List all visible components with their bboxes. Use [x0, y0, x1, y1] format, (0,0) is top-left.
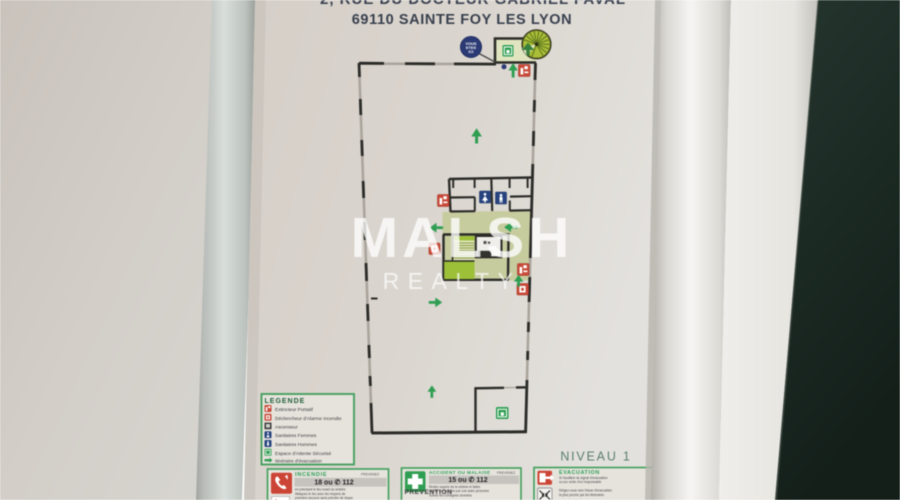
- svg-text:Ascenseur: Ascenseur: [275, 424, 298, 430]
- svg-text:premiers secours sans prendre: premiers secours sans prendre de risque: [295, 496, 353, 500]
- svg-text:15 ou ✆ 112: 15 ou ✆ 112: [448, 476, 487, 484]
- svg-text:PREVENEZ: PREVENEZ: [361, 473, 379, 477]
- svg-text:ou sur ordre d'un responsable: ou sur ordre d'un responsable: [559, 480, 601, 484]
- svg-text:PREVENEZ: PREVENEZ: [497, 471, 515, 475]
- svg-text:Itinéraire d'évacuation: Itinéraire d'évacuation: [275, 458, 322, 464]
- svg-text:en précisant le lieu exact du: en précisant le lieu exact du sinistre: [295, 488, 346, 492]
- svg-text:MALSH: MALSH: [351, 206, 574, 270]
- svg-text:LEGENDE: LEGENDE: [265, 398, 306, 405]
- svg-text:EVACUATION: EVACUATION: [559, 470, 600, 476]
- svg-text:18 ou ✆ 112: 18 ou ✆ 112: [314, 479, 353, 487]
- svg-text:69110 SAINTE FOY LES LYON: 69110 SAINTE FOY LES LYON: [352, 12, 573, 28]
- svg-text:la plus proche par les itinéra: la plus proche par les itinéraires: [559, 493, 604, 497]
- svg-text:Déclencheur d'Alarme Incendie: Déclencheur d'Alarme Incendie: [275, 416, 342, 422]
- svg-text:Suivez les consignes données: Suivez les consignes données: [429, 493, 472, 497]
- svg-text:NIVEAU 1: NIVEAU 1: [560, 450, 631, 464]
- svg-text:2, RUE DU DOCTEUR GABRIEL FAVA: 2, RUE DU DOCTEUR GABRIEL FAVAL: [320, 0, 626, 8]
- svg-text:Espace d'Attente Sécurisé: Espace d'Attente Sécurisé: [275, 451, 331, 457]
- svg-text:Sanitaires Hommes: Sanitaires Hommes: [275, 442, 317, 448]
- svg-text:REALTY: REALTY: [383, 268, 522, 294]
- svg-text:Sanitaires Femmes: Sanitaires Femmes: [275, 433, 317, 439]
- svg-text:ACCIDENT OU MALAISE: ACCIDENT OU MALAISE: [429, 470, 490, 475]
- svg-text:ICI: ICI: [469, 49, 474, 54]
- svg-text:INCENDIE: INCENDIE: [295, 472, 327, 478]
- svg-text:Extincteur Portatif: Extincteur Portatif: [275, 407, 314, 413]
